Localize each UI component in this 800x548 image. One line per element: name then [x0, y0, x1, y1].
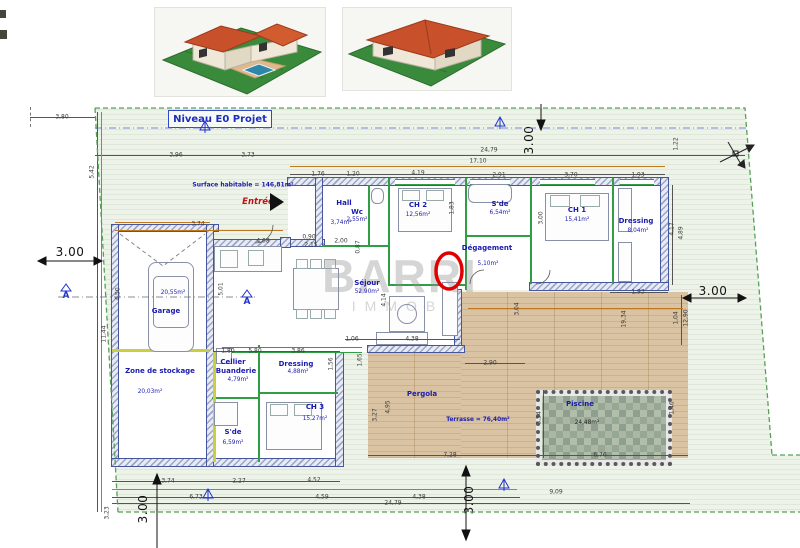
dim-arrow-bottom-left: [153, 474, 161, 548]
floor-plan-page: Niveau E0 Projet: [0, 0, 800, 548]
dim-arrow-right: [683, 294, 746, 302]
dim-arrow-bottom-mid: [462, 466, 470, 540]
overlay-lines: [0, 0, 800, 548]
door-arc: [470, 270, 484, 284]
garage-door-swing: [120, 234, 205, 266]
section-triangle-icon: [242, 290, 252, 297]
red-circle-annotation: [436, 253, 462, 289]
benchmark-icon: [203, 489, 213, 501]
benchmark-icon: [499, 479, 509, 491]
section-triangle-icon: [61, 284, 71, 291]
door-arc: [536, 270, 550, 284]
benchmark-icon: [495, 117, 505, 129]
benchmark-icon: [200, 121, 210, 133]
dim-arrow-left: [38, 257, 102, 265]
plot-boundary: [95, 108, 800, 512]
entry-door-arc: [255, 225, 273, 243]
